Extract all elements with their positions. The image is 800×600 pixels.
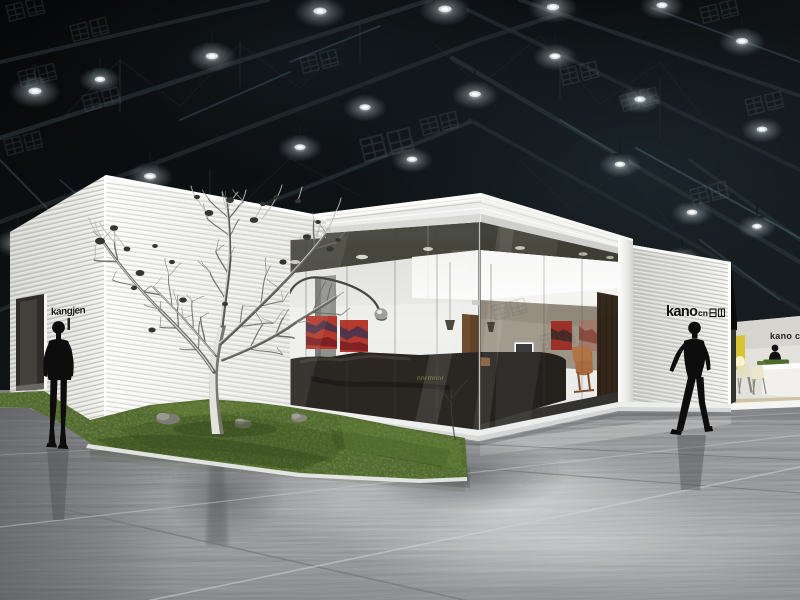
- svg-text:kangjen: kangjen: [51, 305, 86, 318]
- svg-text:cn: cn: [698, 308, 708, 318]
- svg-text:kano: kano: [666, 304, 698, 320]
- svg-text:kano c: kano c: [770, 331, 800, 341]
